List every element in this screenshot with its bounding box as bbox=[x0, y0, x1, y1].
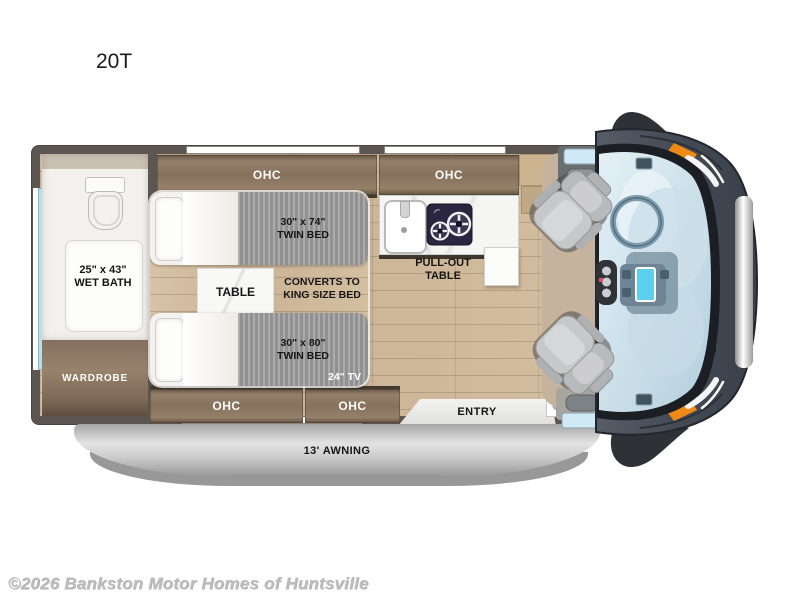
dealer-watermark: ©2026 Bankston Motor Homes of Huntsville bbox=[8, 574, 369, 594]
floorplan-model-title: 20T bbox=[96, 50, 132, 74]
bed-sheet bbox=[183, 192, 238, 265]
overhead-cabinet-top-right: OHC bbox=[379, 155, 519, 198]
overhead-cabinet-bottom-left: OHC bbox=[150, 386, 303, 423]
pillow-icon bbox=[155, 197, 184, 261]
sink-icon bbox=[384, 200, 427, 254]
infotainment-screen bbox=[636, 268, 655, 301]
table-surface: TABLE bbox=[197, 268, 274, 316]
converts-to-king-label: CONVERTS TO KING SIZE BED bbox=[278, 276, 366, 302]
floorplan-canvas: 20T 25" x 43" WET BATH WARDROBE OHC OHC … bbox=[0, 0, 800, 600]
front-bumper-band bbox=[735, 196, 753, 368]
overhead-cabinet-bottom-right: OHC bbox=[305, 386, 400, 423]
table-label: TABLE bbox=[216, 286, 255, 299]
toilet-bowl-icon bbox=[88, 191, 123, 230]
twin-bed-bottom-label: 30" x 80" TWIN BED bbox=[277, 337, 329, 363]
pillow-icon bbox=[155, 318, 184, 382]
wardrobe-label: WARDROBE bbox=[62, 373, 128, 384]
blanket: 30" x 74" TWIN BED bbox=[238, 192, 368, 265]
window-top-left bbox=[186, 146, 360, 154]
cooktop-icon bbox=[426, 203, 473, 246]
van-cab-graphic bbox=[500, 90, 800, 485]
tv-label: 24" TV bbox=[328, 371, 361, 383]
center-console bbox=[596, 260, 617, 305]
twin-bed-top-label: 30" x 74" TWIN BED bbox=[277, 216, 329, 242]
faucet-icon bbox=[400, 201, 410, 218]
twin-bed-bottom: 30" x 80" TWIN BED 24" TV bbox=[150, 313, 368, 386]
toilet-seat-ring bbox=[93, 195, 120, 226]
bed-sheet bbox=[183, 313, 238, 386]
twin-bed-top: 30" x 74" TWIN BED bbox=[150, 192, 368, 265]
wet-bath-label: 25" x 43" WET BATH bbox=[55, 264, 151, 290]
wardrobe-cabinet: WARDROBE bbox=[42, 340, 148, 416]
bedroom-area: 30" x 74" TWIN BED TABLE CONVERTS TO KIN… bbox=[150, 192, 368, 386]
pull-out-table-label: PULL-OUT TABLE bbox=[404, 257, 482, 283]
window-top-right bbox=[384, 146, 506, 154]
drain-icon bbox=[401, 227, 407, 233]
